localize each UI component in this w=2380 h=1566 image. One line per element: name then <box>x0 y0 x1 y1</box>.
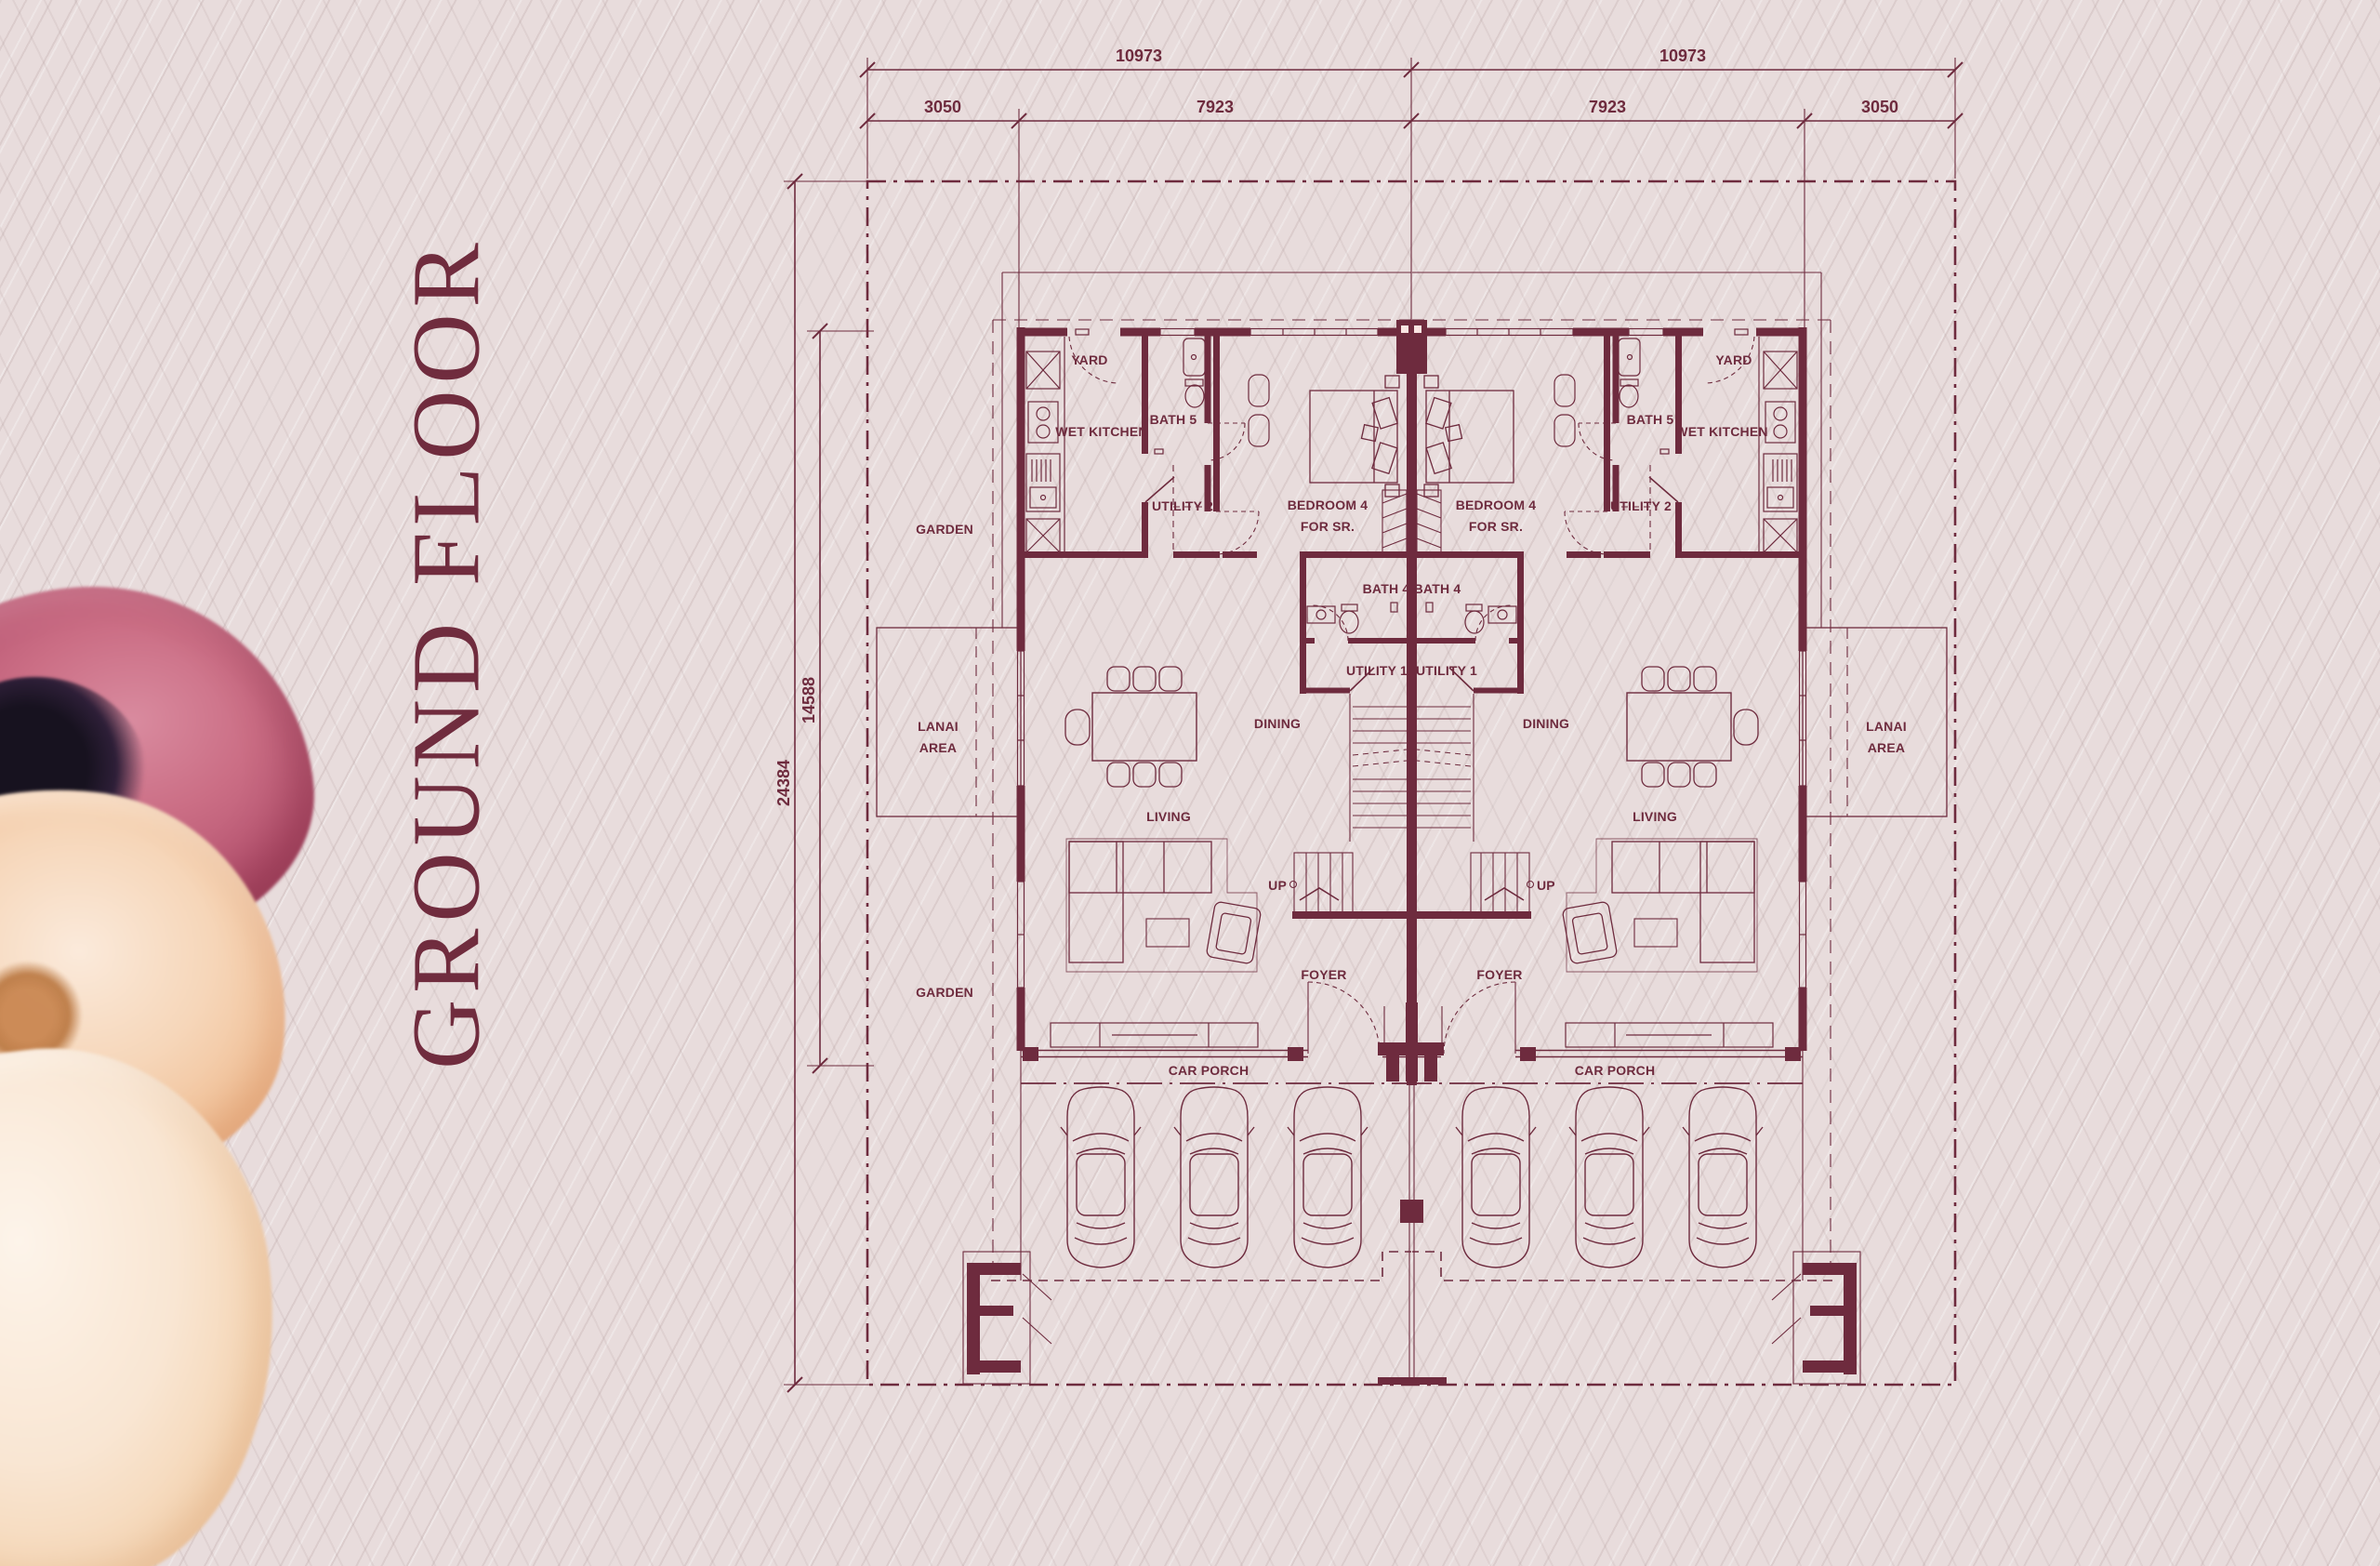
dim-seg-right-inner: 7923 <box>1589 98 1626 116</box>
label-garden-top: GARDEN <box>916 522 973 537</box>
label-utility1-right: UTILITY 1 <box>1416 663 1477 678</box>
party-wall <box>1396 320 1427 1085</box>
label-wet-kitchen-right: WET KITCHEN <box>1675 424 1767 439</box>
room-labels-right: YARD WET KITCHEN BATH 5 UTILITY 2 BEDROO… <box>1414 352 1768 1078</box>
label-lanai-left-2: AREA <box>919 740 957 755</box>
dim-seg-right-outer: 3050 <box>1861 98 1898 116</box>
right-unit <box>1412 272 1947 1384</box>
label-lanai-right-1: LANAI <box>1866 719 1907 734</box>
dim-seg-left-inner: 7923 <box>1197 98 1234 116</box>
label-wet-kitchen-left: WET KITCHEN <box>1055 424 1147 439</box>
dim-top-total-right: 10973 <box>1659 46 1706 65</box>
label-utility2-left: UTILITY 2 <box>1152 498 1213 513</box>
label-bath4-right: BATH 4 <box>1414 581 1461 596</box>
label-dining-left: DINING <box>1254 716 1301 731</box>
label-foyer-right: FOYER <box>1476 967 1522 982</box>
label-up-right: UP <box>1537 878 1555 893</box>
label-car-porch-right: CAR PORCH <box>1575 1063 1656 1078</box>
label-lanai-right-2: AREA <box>1868 740 1905 755</box>
label-bedroom4-left-1: BEDROOM 4 <box>1288 498 1368 512</box>
label-lanai-left-1: LANAI <box>918 719 959 734</box>
label-utility2-right: UTILITY 2 <box>1610 498 1672 513</box>
label-bath4-left: BATH 4 <box>1363 581 1410 596</box>
center-fence <box>1378 1085 1447 1385</box>
room-labels-left: YARD WET KITCHEN BATH 5 UTILITY 2 BEDROO… <box>1055 352 1409 1078</box>
dim-side-total: 24384 <box>774 760 793 806</box>
label-bedroom4-left-2: FOR SR. <box>1301 519 1355 534</box>
label-foyer-left: FOYER <box>1301 967 1346 982</box>
label-yard-right: YARD <box>1715 352 1752 367</box>
label-dining-right: DINING <box>1523 716 1569 731</box>
label-living-left: LIVING <box>1146 809 1191 824</box>
label-up-left: UP <box>1268 878 1287 893</box>
dim-top-total-left: 10973 <box>1116 46 1162 65</box>
dim-side-inner: 14588 <box>800 677 818 723</box>
label-utility1-left: UTILITY 1 <box>1346 663 1408 678</box>
label-bath5-left: BATH 5 <box>1150 412 1197 427</box>
label-yard-left: YARD <box>1071 352 1107 367</box>
floor-plan-page: GROUND FLOOR <box>0 0 2380 1566</box>
entry-portal <box>1378 1002 1444 1082</box>
label-bath5-right: BATH 5 <box>1627 412 1674 427</box>
label-bedroom4-right-1: BEDROOM 4 <box>1456 498 1537 512</box>
dim-seg-left-outer: 3050 <box>924 98 961 116</box>
label-living-right: LIVING <box>1633 809 1677 824</box>
label-garden-bottom: GARDEN <box>916 985 973 1000</box>
label-car-porch-left: CAR PORCH <box>1169 1063 1249 1078</box>
left-unit <box>877 272 1411 1384</box>
label-bedroom4-right-2: FOR SR. <box>1469 519 1523 534</box>
floor-plan-drawing: 10973 10973 3050 7923 7923 3050 24384 14… <box>0 0 2380 1566</box>
